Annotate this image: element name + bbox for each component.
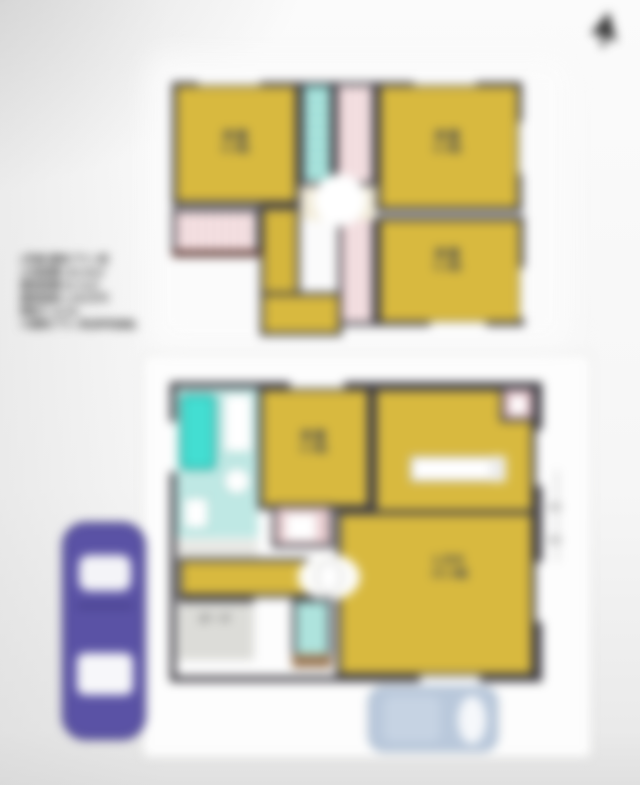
2f-room-se-label: 洋室 5.2帖 [398, 236, 498, 286]
window [414, 80, 476, 85]
room-name: 洋室 [222, 129, 250, 144]
2f-stair-landing [314, 174, 366, 226]
car-rear-window [77, 653, 133, 695]
car-roof-line [77, 603, 133, 609]
2f-room-nw-label: 洋室 6.0帖 [186, 118, 286, 168]
room-name: LDK [434, 552, 467, 568]
room-name: 洋室 [434, 247, 462, 262]
window [198, 80, 260, 85]
window [536, 430, 542, 486]
floorplan-2f: 洋室 6.0帖 洋室 6.0帖 洋室 5.2帖 [168, 78, 530, 340]
parked-car-purple [62, 522, 146, 740]
2f-closet-sw [172, 208, 260, 254]
2f-closet-top [334, 82, 376, 186]
car-windshield [458, 696, 486, 744]
room-size: 6.0帖 [434, 144, 462, 157]
window [520, 268, 525, 318]
2f-closet-mid [338, 216, 376, 326]
room-name: 洋室 [434, 129, 462, 144]
blurred-floorplan-photo: 洋室 6.0帖 洋室 6.0帖 洋室 5.2帖 2号棟 建物プラン例 土地面積:… [0, 0, 640, 785]
info-line: 土地面積:100.08㎡ [20, 267, 220, 280]
car-windshield [79, 555, 131, 591]
mouse-cursor-arrow [589, 11, 629, 52]
room-size: 6.0帖 [222, 144, 250, 157]
info-line: 2号棟 建物プラン例 [20, 254, 220, 267]
1f-ldk-label: LDK 15.2帖 [400, 540, 500, 594]
window [170, 422, 176, 472]
2f-hall-lower [260, 292, 342, 336]
window [430, 322, 486, 327]
room-size: 15.2帖 [431, 568, 468, 582]
window [536, 562, 542, 622]
parked-car-blue [368, 686, 498, 752]
room-name: 洋室 [300, 429, 328, 444]
2f-room-ne-label: 洋室 6.0帖 [398, 118, 498, 168]
window [420, 676, 480, 682]
info-line: 建物面積:93.15㎡ [20, 280, 220, 293]
dimension-line [556, 470, 558, 562]
room-size: 4.5帖 [300, 444, 328, 457]
window [519, 122, 524, 174]
info-line: 建物価格:1,650万円 [20, 293, 220, 306]
info-line: 間取り:4LDK [20, 306, 220, 319]
info-line: ※建物プラン例(参考価格) [20, 319, 220, 332]
room-size: 5.2帖 [434, 262, 462, 275]
floorplan-1f: ポーチ 洋室 4.5帖 LDK 15.2帖 [170, 382, 542, 682]
dimension-tick [549, 505, 561, 509]
2f-balcony-strip [300, 82, 334, 186]
window [290, 382, 344, 388]
property-info-block: 2号棟 建物プラン例 土地面積:100.08㎡ 建物面積:93.15㎡ 建物価格… [20, 254, 220, 332]
car-hood [384, 696, 440, 742]
1f-bedroom-label: 洋室 4.5帖 [264, 418, 364, 468]
dimension-tick [549, 538, 561, 542]
